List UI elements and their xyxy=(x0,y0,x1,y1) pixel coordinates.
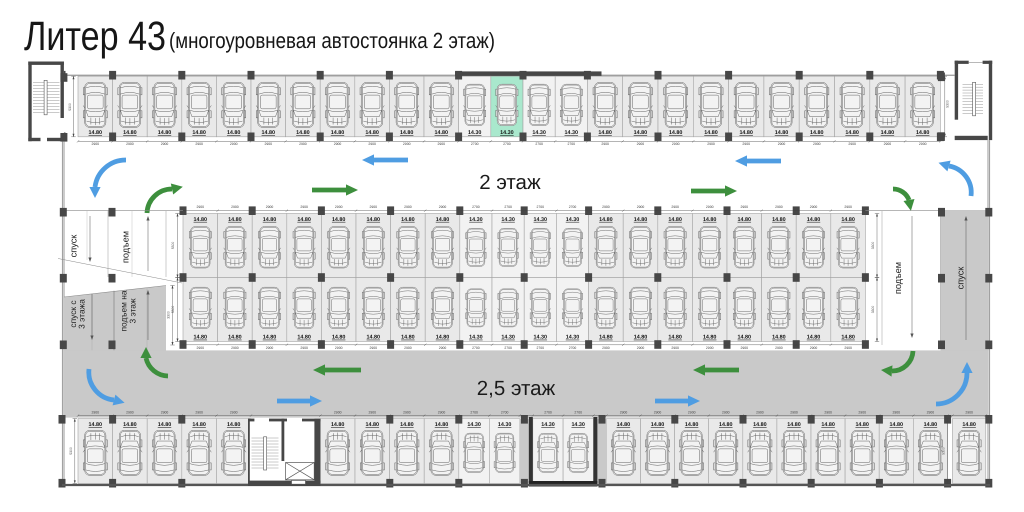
svg-text:14.80: 14.80 xyxy=(297,217,311,223)
svg-text:14.80: 14.80 xyxy=(227,130,241,136)
svg-text:2900: 2900 xyxy=(722,411,730,415)
svg-text:2900: 2900 xyxy=(706,205,714,209)
svg-text:2900: 2900 xyxy=(778,142,786,146)
svg-text:2900: 2900 xyxy=(197,205,205,209)
svg-text:14.80: 14.80 xyxy=(123,422,137,428)
svg-text:14.80: 14.80 xyxy=(668,217,682,223)
svg-text:2700: 2700 xyxy=(504,205,512,209)
svg-text:2900: 2900 xyxy=(620,411,628,415)
svg-text:3300: 3300 xyxy=(871,306,875,314)
svg-text:спуск: спуск xyxy=(69,234,79,258)
svg-text:14.80: 14.80 xyxy=(598,130,612,136)
svg-text:14.80: 14.80 xyxy=(401,335,415,341)
svg-text:2900: 2900 xyxy=(126,411,134,415)
svg-text:14.30: 14.30 xyxy=(532,130,546,136)
svg-text:3300: 3300 xyxy=(871,242,875,250)
svg-text:2900: 2900 xyxy=(858,411,866,415)
svg-text:14.80: 14.80 xyxy=(685,422,699,428)
svg-text:14.80: 14.80 xyxy=(123,130,137,136)
svg-text:14.80: 14.80 xyxy=(703,217,717,223)
svg-text:14.80: 14.80 xyxy=(194,335,208,341)
svg-text:14.80: 14.80 xyxy=(367,217,381,223)
svg-text:14.30: 14.30 xyxy=(469,335,483,341)
svg-text:2900: 2900 xyxy=(265,142,273,146)
svg-text:14.80: 14.80 xyxy=(158,130,172,136)
svg-text:Литер 43: Литер 43 xyxy=(24,13,166,59)
svg-text:2900: 2900 xyxy=(126,142,134,146)
svg-text:2900: 2900 xyxy=(370,346,378,350)
svg-text:14.80: 14.80 xyxy=(668,335,682,341)
svg-text:14.80: 14.80 xyxy=(738,217,752,223)
svg-text:2700: 2700 xyxy=(504,346,512,350)
svg-text:14.80: 14.80 xyxy=(436,217,450,223)
svg-text:2900: 2900 xyxy=(404,346,412,350)
svg-text:2900: 2900 xyxy=(844,346,852,350)
svg-text:14.30: 14.30 xyxy=(566,335,580,341)
svg-text:14.80: 14.80 xyxy=(194,217,208,223)
svg-text:14.80: 14.80 xyxy=(400,422,414,428)
svg-text:14.80: 14.80 xyxy=(775,130,789,136)
svg-text:2900: 2900 xyxy=(335,346,343,350)
svg-text:14.80: 14.80 xyxy=(651,422,665,428)
svg-text:14.80: 14.80 xyxy=(435,130,449,136)
svg-text:2900: 2900 xyxy=(654,411,662,415)
svg-text:2900: 2900 xyxy=(230,411,238,415)
svg-text:14.80: 14.80 xyxy=(738,335,752,341)
svg-text:14.80: 14.80 xyxy=(821,422,835,428)
svg-text:14.80: 14.80 xyxy=(719,422,733,428)
svg-text:2900: 2900 xyxy=(637,205,645,209)
svg-text:14.80: 14.80 xyxy=(772,335,786,341)
svg-text:2900: 2900 xyxy=(300,346,308,350)
svg-text:5300: 5300 xyxy=(68,103,72,111)
svg-text:14.80: 14.80 xyxy=(634,335,648,341)
svg-text:14.80: 14.80 xyxy=(332,217,346,223)
svg-text:2900: 2900 xyxy=(300,205,308,209)
svg-text:14.80: 14.80 xyxy=(669,130,683,136)
svg-text:14.80: 14.80 xyxy=(332,335,346,341)
svg-text:2900: 2900 xyxy=(965,411,973,415)
svg-text:2700: 2700 xyxy=(472,346,480,350)
svg-text:14.80: 14.80 xyxy=(599,335,613,341)
svg-text:14.80: 14.80 xyxy=(845,130,859,136)
svg-text:2900: 2900 xyxy=(231,205,239,209)
svg-text:2900: 2900 xyxy=(439,205,447,209)
svg-text:2900: 2900 xyxy=(161,411,169,415)
svg-text:2700: 2700 xyxy=(471,142,479,146)
svg-text:2700: 2700 xyxy=(537,346,545,350)
svg-text:2900: 2900 xyxy=(438,411,446,415)
svg-text:14.80: 14.80 xyxy=(365,130,379,136)
svg-text:14.30: 14.30 xyxy=(467,422,481,428)
svg-text:подъем: подъем xyxy=(893,262,903,294)
svg-text:2900: 2900 xyxy=(637,346,645,350)
svg-text:2900: 2900 xyxy=(637,142,645,146)
svg-text:14.80: 14.80 xyxy=(263,217,277,223)
svg-text:2900: 2900 xyxy=(370,205,378,209)
svg-text:14.80: 14.80 xyxy=(436,335,450,341)
svg-text:2900: 2900 xyxy=(404,205,412,209)
svg-text:2900: 2900 xyxy=(403,411,411,415)
svg-text:подъем: подъем xyxy=(121,231,131,263)
svg-text:3 этажа: 3 этажа xyxy=(77,299,87,329)
svg-text:14.80: 14.80 xyxy=(617,422,631,428)
svg-text:14.80: 14.80 xyxy=(807,217,821,223)
svg-text:14.80: 14.80 xyxy=(890,422,904,428)
svg-text:14.80: 14.80 xyxy=(296,130,310,136)
svg-text:2900: 2900 xyxy=(92,411,100,415)
svg-text:2700: 2700 xyxy=(569,205,577,209)
svg-text:14.80: 14.80 xyxy=(810,130,824,136)
svg-text:2700: 2700 xyxy=(535,142,543,146)
svg-text:2900: 2900 xyxy=(368,142,376,146)
svg-text:3300: 3300 xyxy=(167,311,171,319)
svg-text:14.80: 14.80 xyxy=(89,422,103,428)
svg-text:14.80: 14.80 xyxy=(331,422,345,428)
svg-text:2900: 2900 xyxy=(601,142,609,146)
svg-text:14.80: 14.80 xyxy=(841,217,855,223)
svg-text:14.80: 14.80 xyxy=(855,422,869,428)
svg-text:2900: 2900 xyxy=(231,346,239,350)
svg-text:14.80: 14.80 xyxy=(435,422,449,428)
svg-text:14.80: 14.80 xyxy=(634,217,648,223)
svg-text:2900: 2900 xyxy=(439,346,447,350)
svg-text:14.80: 14.80 xyxy=(807,335,821,341)
svg-text:2900: 2900 xyxy=(756,411,764,415)
svg-text:14.80: 14.80 xyxy=(881,130,895,136)
svg-text:14.80: 14.80 xyxy=(89,130,103,136)
svg-text:2900: 2900 xyxy=(334,411,342,415)
svg-text:2900: 2900 xyxy=(810,205,818,209)
svg-text:2,5 этаж: 2,5 этаж xyxy=(477,377,556,400)
svg-text:14.30: 14.30 xyxy=(469,217,483,223)
svg-text:2700: 2700 xyxy=(503,142,511,146)
svg-text:2900: 2900 xyxy=(299,142,307,146)
svg-text:14.80: 14.80 xyxy=(262,130,276,136)
svg-text:2900: 2900 xyxy=(741,205,749,209)
svg-text:2900: 2900 xyxy=(92,142,100,146)
svg-text:2900: 2900 xyxy=(671,205,679,209)
svg-text:14.80: 14.80 xyxy=(739,130,753,136)
svg-text:14.80: 14.80 xyxy=(924,422,938,428)
svg-text:2900: 2900 xyxy=(707,142,715,146)
svg-text:14.30: 14.30 xyxy=(501,335,515,341)
svg-text:2900: 2900 xyxy=(848,142,856,146)
svg-text:14.80: 14.80 xyxy=(192,422,206,428)
svg-text:14.80: 14.80 xyxy=(227,422,241,428)
svg-text:2900: 2900 xyxy=(335,205,343,209)
svg-text:2 этаж: 2 этаж xyxy=(479,171,541,194)
svg-text:14.80: 14.80 xyxy=(366,422,380,428)
svg-text:2900: 2900 xyxy=(161,142,169,146)
svg-text:14.80: 14.80 xyxy=(192,130,206,136)
svg-text:2700: 2700 xyxy=(544,411,552,415)
svg-text:2900: 2900 xyxy=(266,346,274,350)
svg-text:2900: 2900 xyxy=(884,142,892,146)
svg-text:2900: 2900 xyxy=(844,205,852,209)
svg-text:14.30: 14.30 xyxy=(500,130,514,136)
svg-text:2900: 2900 xyxy=(195,142,203,146)
svg-text:3 этаж: 3 этаж xyxy=(128,298,138,323)
svg-text:2900: 2900 xyxy=(369,411,377,415)
svg-text:14.80: 14.80 xyxy=(263,335,277,341)
svg-text:2900: 2900 xyxy=(403,142,411,146)
svg-text:5300: 5300 xyxy=(941,447,945,455)
svg-text:2900: 2900 xyxy=(334,142,342,146)
svg-text:2900: 2900 xyxy=(706,346,714,350)
svg-text:14.80: 14.80 xyxy=(704,130,718,136)
svg-text:2700: 2700 xyxy=(537,205,545,209)
svg-text:14.30: 14.30 xyxy=(566,217,580,223)
svg-text:14.80: 14.80 xyxy=(787,422,801,428)
svg-text:2900: 2900 xyxy=(775,205,783,209)
svg-text:14.80: 14.80 xyxy=(367,335,381,341)
svg-text:2900: 2900 xyxy=(195,411,203,415)
svg-text:2900: 2900 xyxy=(810,346,818,350)
svg-text:14.80: 14.80 xyxy=(158,422,172,428)
svg-text:14.80: 14.80 xyxy=(772,217,786,223)
svg-text:14.80: 14.80 xyxy=(916,130,930,136)
svg-text:14.80: 14.80 xyxy=(599,217,613,223)
svg-text:2900: 2900 xyxy=(230,142,238,146)
svg-text:2700: 2700 xyxy=(470,411,478,415)
svg-text:14.30: 14.30 xyxy=(534,335,548,341)
svg-text:5300: 5300 xyxy=(69,447,73,455)
svg-text:14.30: 14.30 xyxy=(571,422,585,428)
svg-text:2900: 2900 xyxy=(790,411,798,415)
svg-text:2900: 2900 xyxy=(266,205,274,209)
svg-text:5500: 5500 xyxy=(171,242,175,250)
svg-text:спуск: спуск xyxy=(956,266,966,290)
svg-text:2900: 2900 xyxy=(775,346,783,350)
svg-text:14.80: 14.80 xyxy=(400,130,414,136)
svg-text:14.80: 14.80 xyxy=(962,422,976,428)
svg-text:14.80: 14.80 xyxy=(703,335,717,341)
svg-text:14.80: 14.80 xyxy=(297,335,311,341)
svg-text:14.30: 14.30 xyxy=(501,217,515,223)
svg-text:14.80: 14.80 xyxy=(228,335,242,341)
svg-text:2700: 2700 xyxy=(569,346,577,350)
svg-text:5500: 5500 xyxy=(171,306,175,314)
svg-text:2700: 2700 xyxy=(501,411,509,415)
svg-text:2700: 2700 xyxy=(568,142,576,146)
svg-text:2900: 2900 xyxy=(824,411,832,415)
svg-text:14.80: 14.80 xyxy=(401,217,415,223)
svg-text:2900: 2900 xyxy=(671,346,679,350)
svg-text:14.30: 14.30 xyxy=(534,217,548,223)
svg-text:14.30: 14.30 xyxy=(541,422,555,428)
svg-text:2900: 2900 xyxy=(893,411,901,415)
svg-text:14.80: 14.80 xyxy=(841,335,855,341)
svg-text:2900: 2900 xyxy=(197,346,205,350)
svg-text:2900: 2900 xyxy=(672,142,680,146)
svg-text:14.30: 14.30 xyxy=(498,422,512,428)
svg-text:(многоуровневая автостоянка 2: (многоуровневая автостоянка 2 этаж) xyxy=(169,28,495,53)
svg-text:14.30: 14.30 xyxy=(468,130,482,136)
svg-text:2700: 2700 xyxy=(472,205,480,209)
svg-text:2900: 2900 xyxy=(438,142,446,146)
svg-text:2900: 2900 xyxy=(927,411,935,415)
svg-text:14.30: 14.30 xyxy=(565,130,579,136)
svg-text:2900: 2900 xyxy=(688,411,696,415)
svg-text:2900: 2900 xyxy=(919,142,927,146)
svg-text:2900: 2900 xyxy=(741,346,749,350)
svg-text:2900: 2900 xyxy=(602,346,610,350)
svg-text:2700: 2700 xyxy=(574,411,582,415)
svg-text:14.80: 14.80 xyxy=(331,130,345,136)
svg-text:14.80: 14.80 xyxy=(753,422,767,428)
svg-text:2900: 2900 xyxy=(813,142,821,146)
svg-text:14.80: 14.80 xyxy=(228,217,242,223)
svg-text:14.80: 14.80 xyxy=(634,130,648,136)
svg-text:2900: 2900 xyxy=(602,205,610,209)
svg-text:2900: 2900 xyxy=(742,142,750,146)
svg-text:5300: 5300 xyxy=(946,100,950,108)
